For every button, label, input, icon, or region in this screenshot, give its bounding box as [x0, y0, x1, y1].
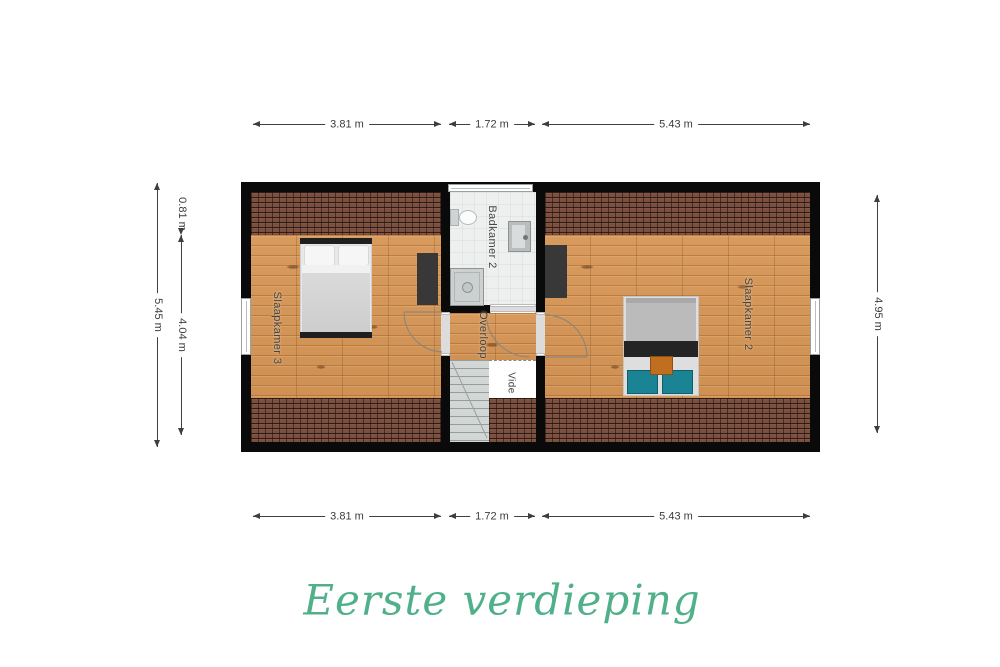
dimension-label: 5.43 m — [654, 511, 698, 523]
orange-cushion — [650, 356, 673, 375]
dimension-label: 5.43 m — [654, 119, 698, 131]
dimension-label: 1.72 m — [470, 119, 514, 131]
dimension-bottom-middle: 1.72 m — [449, 516, 535, 517]
dimension-label: 3.81 m — [325, 511, 369, 523]
floor-plan-page: 3.81 m 1.72 m 5.43 m 3.81 m 1.72 m 5.43 … — [0, 0, 1000, 667]
dimension-top-left: 3.81 m — [253, 124, 441, 125]
dimension-left-upper: 0.81 m — [181, 192, 182, 235]
dimension-left-lower: 4.04 m — [181, 235, 182, 435]
dimension-label: 3.81 m — [325, 119, 369, 131]
dimension-right: 4.95 m — [877, 195, 878, 433]
room-label-bedroom3: Slaapkamer 3 — [271, 292, 283, 365]
dimension-label: 0.81 m — [176, 192, 188, 236]
room-label-void: Vide — [506, 372, 517, 393]
dimension-top-middle: 1.72 m — [449, 124, 535, 125]
room-label-landing: Overloop — [477, 311, 489, 359]
dimension-bottom-right: 5.43 m — [542, 516, 810, 517]
dimension-label: 4.95 m — [872, 292, 884, 336]
dimension-label: 1.72 m — [470, 511, 514, 523]
dimension-label: 5.45 m — [152, 293, 164, 337]
dimension-top-right: 5.43 m — [542, 124, 810, 125]
room-label-bathroom: Badkamer 2 — [486, 205, 498, 268]
floor-plan — [241, 182, 820, 452]
floor-title: Eerste verdieping — [303, 576, 700, 625]
dimension-label: 4.04 m — [176, 313, 188, 357]
room-label-bedroom2: Slaapkamer 2 — [742, 278, 754, 351]
dimension-left-total: 5.45 m — [157, 183, 158, 447]
dimension-bottom-left: 3.81 m — [253, 516, 441, 517]
door-swing-overlay — [241, 182, 820, 452]
